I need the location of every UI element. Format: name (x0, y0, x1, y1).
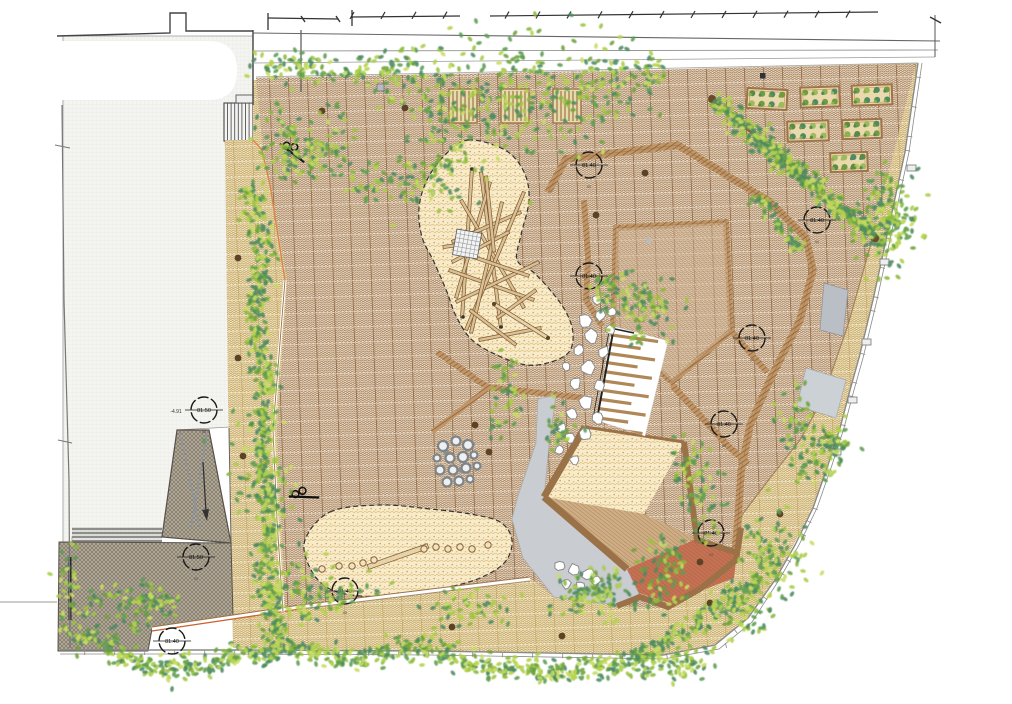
svg-text:81.40: 81.40 (582, 274, 596, 280)
svg-text:81.40: 81.40 (717, 422, 731, 428)
svg-text:xx: xx (750, 357, 755, 362)
svg-text:xx: xx (587, 184, 592, 189)
svg-text:81.40: 81.40 (165, 639, 179, 645)
svg-text:xx: xx (202, 429, 207, 434)
svg-text:xx: xx (587, 295, 592, 300)
svg-text:xx: xx (815, 239, 820, 244)
svg-text:xx: xx (722, 443, 727, 448)
svg-text:81.50: 81.50 (189, 555, 203, 561)
svg-text:81.40: 81.40 (810, 218, 824, 224)
svg-text:-4.91: -4.91 (170, 409, 182, 415)
svg-text:81.40: 81.40 (582, 163, 596, 169)
svg-text:xx: xx (343, 610, 348, 615)
svg-text:81.40: 81.40 (745, 336, 759, 342)
svg-text:xx: xx (194, 576, 199, 581)
svg-text:81.50: 81.50 (197, 408, 211, 414)
svg-text:xx: xx (709, 552, 714, 557)
